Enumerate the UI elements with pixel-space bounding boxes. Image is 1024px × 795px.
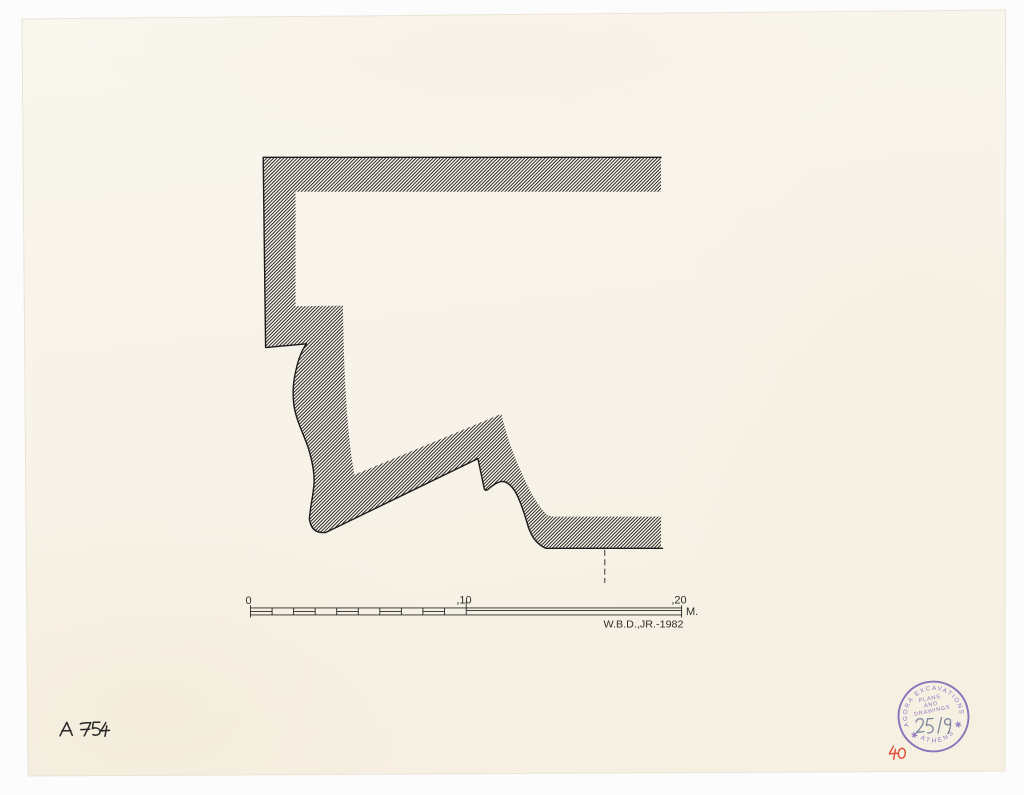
svg-text:0: 0: [246, 595, 252, 607]
svg-text:,10: ,10: [456, 595, 471, 607]
svg-text:,20: ,20: [671, 595, 686, 607]
svg-text:W.B.D.,JR.-1982: W.B.D.,JR.-1982: [604, 619, 684, 631]
svg-text:M.: M.: [686, 606, 698, 618]
